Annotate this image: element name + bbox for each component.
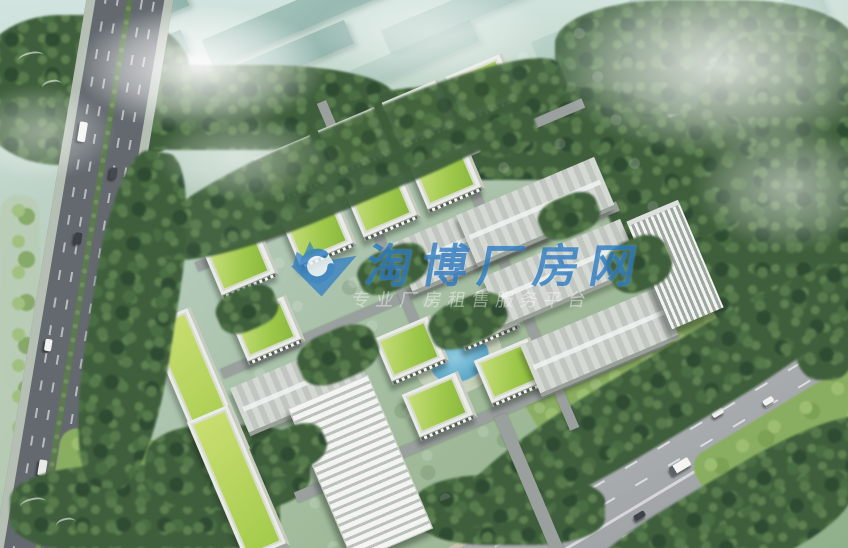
vehicle-car — [44, 339, 53, 352]
aerial-rendering-scene: 淘博厂房网 专业厂房租售服务平台 — [0, 0, 848, 548]
vehicle-bus — [77, 121, 88, 142]
vehicle-car — [109, 167, 118, 180]
vehicle-car — [633, 510, 646, 521]
vehicle-car — [74, 232, 83, 245]
